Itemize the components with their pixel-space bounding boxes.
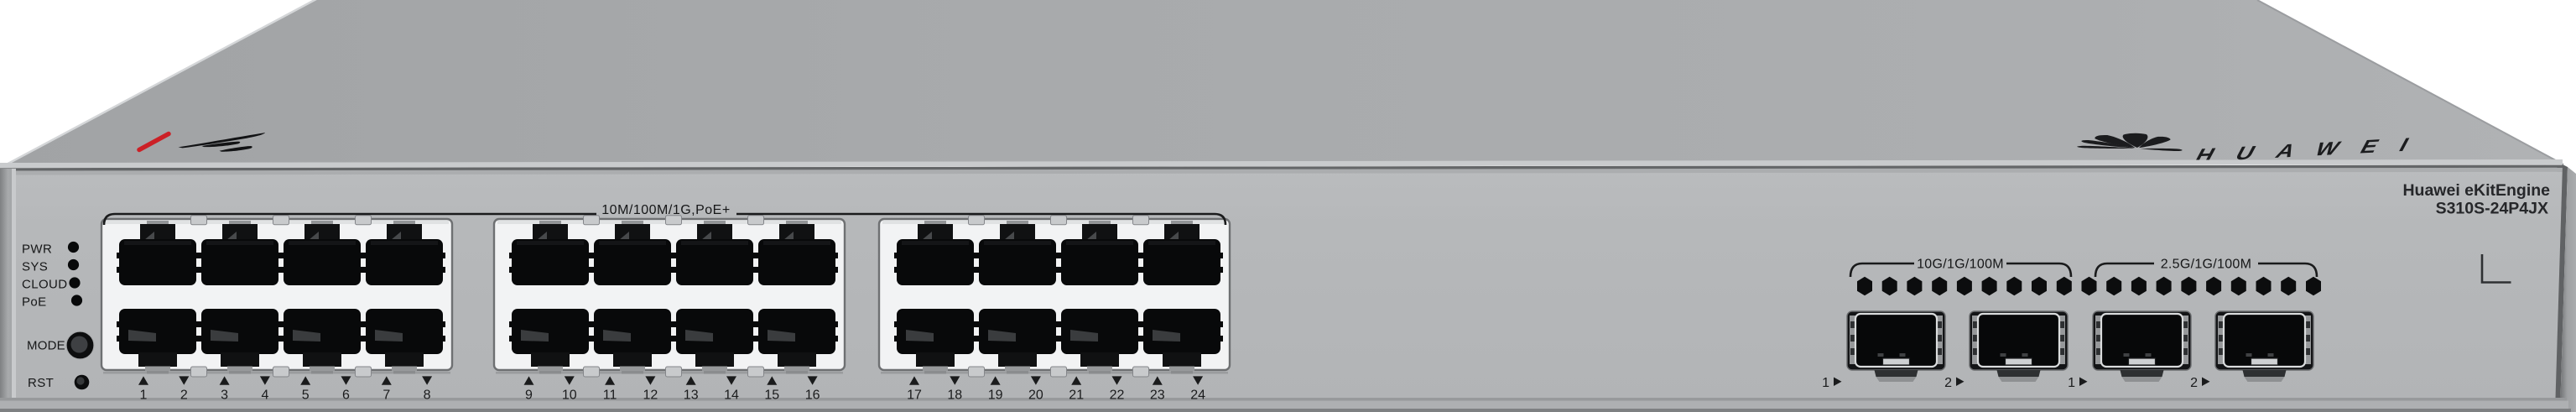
svg-text:23: 23: [1150, 389, 1165, 403]
svg-text:10: 10: [562, 389, 577, 403]
svg-text:20: 20: [1028, 389, 1043, 403]
svg-text:1: 1: [2068, 376, 2075, 390]
svg-text:13: 13: [684, 389, 699, 403]
svg-text:19: 19: [988, 389, 1003, 403]
svg-text:11: 11: [603, 389, 617, 403]
svg-text:12: 12: [643, 389, 658, 403]
svg-text:2.5G/1G/100M: 2.5G/1G/100M: [2161, 258, 2252, 272]
svg-text:4: 4: [261, 389, 268, 403]
svg-text:PWR: PWR: [22, 243, 52, 257]
svg-text:15: 15: [764, 389, 779, 403]
svg-text:RST: RST: [28, 376, 54, 390]
svg-text:CLOUD: CLOUD: [22, 278, 68, 292]
svg-text:MODE: MODE: [27, 339, 65, 353]
svg-text:8: 8: [424, 389, 431, 403]
svg-text:1: 1: [1822, 376, 1829, 390]
svg-text:21: 21: [1069, 389, 1084, 403]
svg-text:3: 3: [221, 389, 228, 403]
svg-text:PoE: PoE: [22, 295, 47, 310]
svg-text:SYS: SYS: [22, 260, 48, 274]
svg-text:2: 2: [180, 389, 188, 403]
svg-text:1: 1: [140, 389, 148, 403]
svg-text:2: 2: [1944, 376, 1952, 390]
svg-text:5: 5: [302, 389, 310, 403]
svg-text:14: 14: [724, 389, 739, 403]
svg-text:16: 16: [805, 389, 820, 403]
svg-text:2: 2: [2190, 376, 2198, 390]
svg-text:24: 24: [1190, 389, 1205, 403]
svg-text:7: 7: [382, 389, 390, 403]
svg-text:6: 6: [342, 389, 350, 403]
svg-text:9: 9: [525, 389, 533, 403]
svg-text:18: 18: [947, 389, 962, 403]
svg-text:10G/1G/100M: 10G/1G/100M: [1917, 258, 2004, 272]
svg-text:10M/100M/1G,PoE+: 10M/100M/1G,PoE+: [601, 203, 730, 217]
svg-text:Huawei eKitEngine: Huawei eKitEngine: [2402, 181, 2550, 200]
svg-text:17: 17: [907, 389, 922, 403]
svg-text:S310S-24P4JX: S310S-24P4JX: [2436, 200, 2548, 218]
svg-text:22: 22: [1110, 389, 1125, 403]
